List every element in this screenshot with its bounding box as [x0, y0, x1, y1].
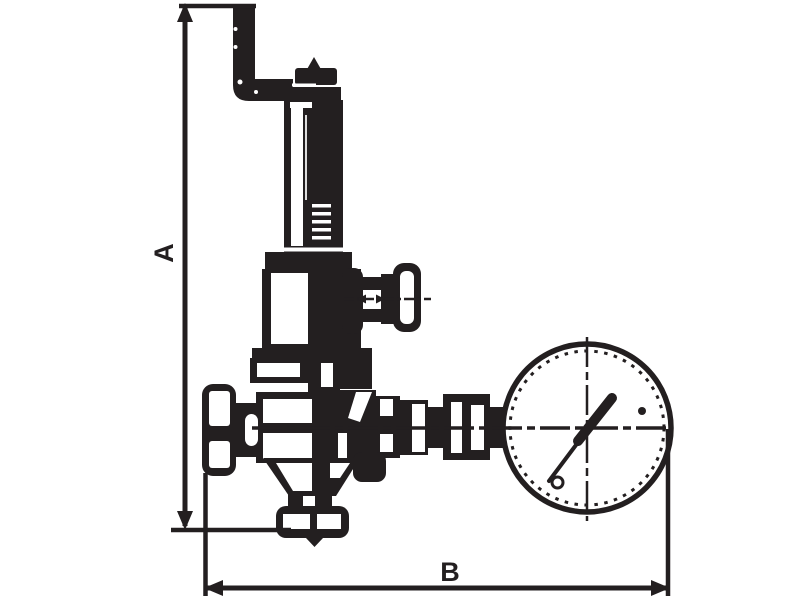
outlet-neck-left	[288, 493, 303, 508]
handwheel-slot-bottom	[209, 441, 230, 468]
gauge-dial-dot	[638, 407, 646, 415]
handwheel	[202, 384, 258, 476]
gauge-needle-hub	[552, 477, 563, 488]
dim-a-label: A	[149, 243, 179, 263]
body-upper-face	[263, 399, 312, 423]
dim-a-arrow-bottom	[177, 511, 193, 530]
bottom-outlet	[263, 458, 360, 547]
drawing-canvas: A B	[0, 0, 800, 598]
stem-thread-line	[312, 236, 331, 240]
relief-pipe	[233, 4, 293, 101]
pipe-highlight-dot	[234, 45, 238, 49]
cone-slot	[338, 433, 347, 458]
handwheel-slot-top	[209, 391, 230, 426]
flange-bolt-slot	[321, 363, 333, 387]
relief-pipe-shape	[233, 4, 293, 101]
outlet-nut-slot-left	[283, 514, 310, 529]
outlet-tip	[306, 538, 323, 547]
outlet-nut-slot-right	[317, 514, 341, 529]
cap-lower-band	[286, 87, 341, 104]
cap-top-band	[295, 68, 337, 85]
bonnet-highlight	[291, 108, 303, 246]
cap-slot	[290, 102, 312, 108]
stem-thread-line	[312, 220, 331, 224]
bell-housing	[262, 268, 363, 350]
flange-gap-line	[284, 248, 343, 252]
valve-assembly	[202, 4, 671, 547]
side-valve-handle-slot	[400, 271, 414, 324]
flange-right-step	[340, 358, 372, 389]
dim-b-label: B	[440, 557, 460, 587]
drain-plug	[353, 452, 386, 482]
body-lower-face	[263, 433, 312, 459]
bell-highlight	[271, 273, 308, 344]
bonnet-flange	[265, 248, 352, 270]
stem-thread-line	[312, 204, 331, 208]
cap-gap-line	[292, 84, 316, 87]
adjusting-cap	[286, 57, 341, 108]
flange-ring	[265, 252, 352, 269]
bonnet-thin-highlight	[305, 115, 307, 200]
spring-bonnet	[284, 100, 343, 252]
stem-thread-line	[312, 228, 331, 232]
pipe-highlight-dot	[238, 80, 243, 85]
outlet-neck-right	[315, 493, 332, 508]
flange-nut-slot	[257, 363, 300, 377]
stem-thread-line	[312, 212, 331, 216]
pipe-highlight-dot	[234, 27, 238, 31]
pipe-highlight-dot	[254, 90, 258, 94]
fitting-1-slot-top	[380, 399, 393, 416]
fitting-1-slot-bottom	[380, 434, 393, 452]
hub-slot	[245, 414, 258, 446]
body-flange-zone	[250, 348, 372, 392]
valve-technical-drawing: A B	[0, 0, 800, 598]
